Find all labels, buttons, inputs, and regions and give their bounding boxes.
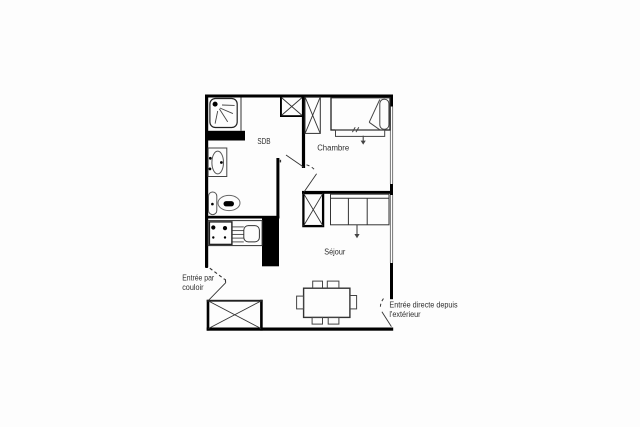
svg-text:Séjour: Séjour: [324, 248, 345, 257]
svg-text:Entrée par: Entrée par: [182, 274, 214, 283]
svg-text:SDB: SDB: [257, 137, 270, 146]
svg-text:l'extérieur: l'extérieur: [389, 310, 421, 319]
svg-text:Chambre: Chambre: [317, 144, 349, 153]
svg-text:couloir: couloir: [182, 283, 204, 292]
svg-text:Entrée directe depuis: Entrée directe depuis: [389, 301, 457, 310]
